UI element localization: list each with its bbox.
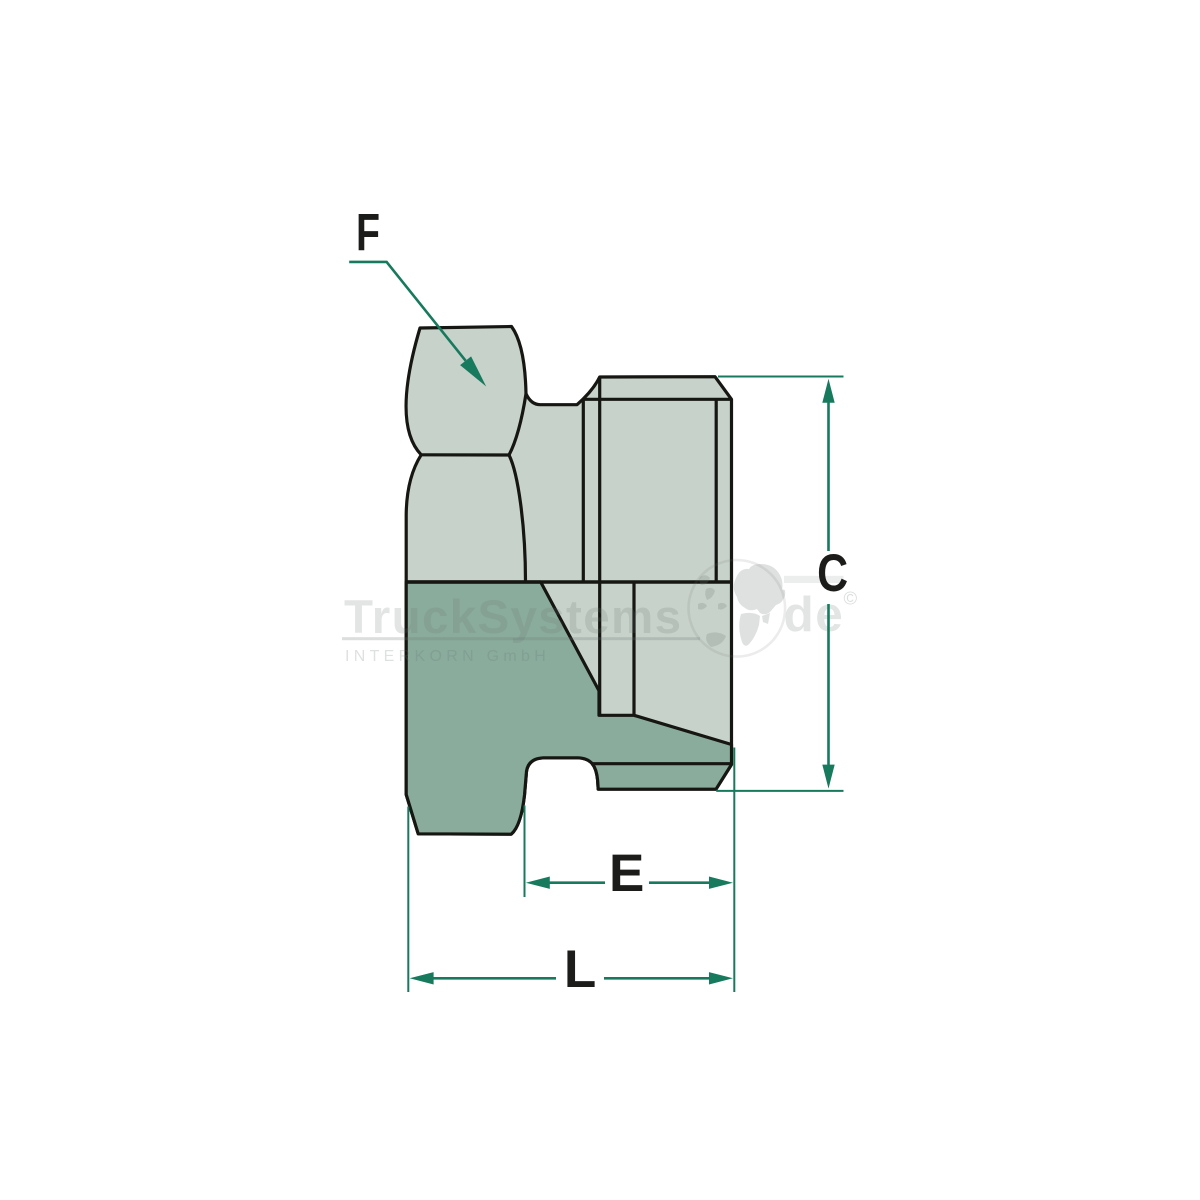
svg-text:C: C [817,544,848,603]
svg-text:L: L [564,940,596,999]
svg-text:TruckSystems: TruckSystems [344,591,682,644]
svg-text:E: E [609,844,644,903]
svg-text:F: F [356,204,380,263]
svg-text:INTERKORN GmbH: INTERKORN GmbH [345,648,550,665]
